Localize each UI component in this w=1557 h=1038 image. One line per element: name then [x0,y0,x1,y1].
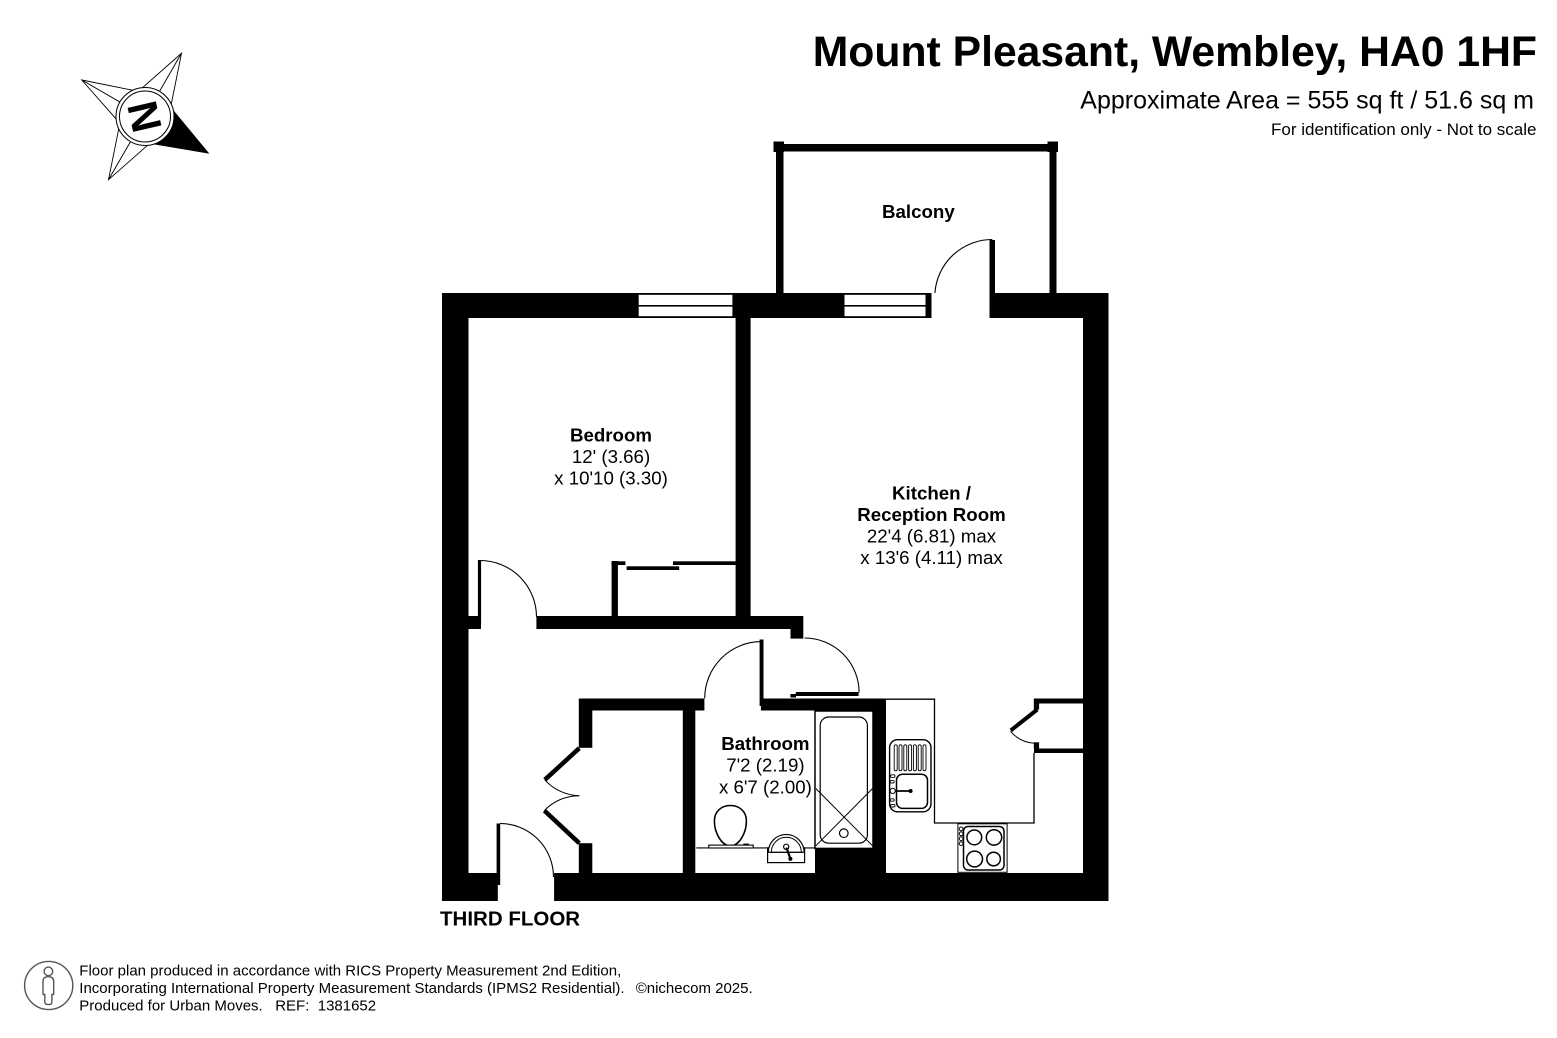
svg-text:Reception Room: Reception Room [857,504,1005,525]
svg-text:x 13'6 (4.11) max: x 13'6 (4.11) max [860,547,1003,568]
svg-text:Incorporating International Pr: Incorporating International Property Mea… [79,980,624,997]
svg-text:x 6'7 (2.00): x 6'7 (2.00) [719,776,812,797]
svg-text:Balcony: Balcony [882,201,955,222]
svg-text:Approximate Area = 555 sq ft /: Approximate Area = 555 sq ft / 51.6 sq m [1080,87,1534,115]
svg-text:THIRD FLOOR: THIRD FLOOR [440,908,580,931]
svg-text:x 10'10 (3.30): x 10'10 (3.30) [554,467,668,488]
svg-text:For identification only - Not: For identification only - Not to scale [1271,120,1537,139]
svg-text:©nichecom 2025.: ©nichecom 2025. [636,980,753,997]
svg-text:Bedroom: Bedroom [570,425,652,446]
svg-text:Kitchen /: Kitchen / [892,483,972,504]
svg-text:Produced for Urban Moves. RE: Produced for Urban Moves. REF: 1381652 [79,997,376,1014]
svg-text:Bathroom: Bathroom [721,733,809,754]
svg-text:7'2 (2.19): 7'2 (2.19) [726,755,804,776]
svg-text:22'4 (6.81) max: 22'4 (6.81) max [867,525,997,546]
svg-text:Floor plan produced in accorda: Floor plan produced in accordance with R… [79,963,621,980]
svg-text:Mount Pleasant, Wembley, HA0 1: Mount Pleasant, Wembley, HA0 1HF [813,28,1537,76]
svg-text:12' (3.66): 12' (3.66) [572,446,650,467]
